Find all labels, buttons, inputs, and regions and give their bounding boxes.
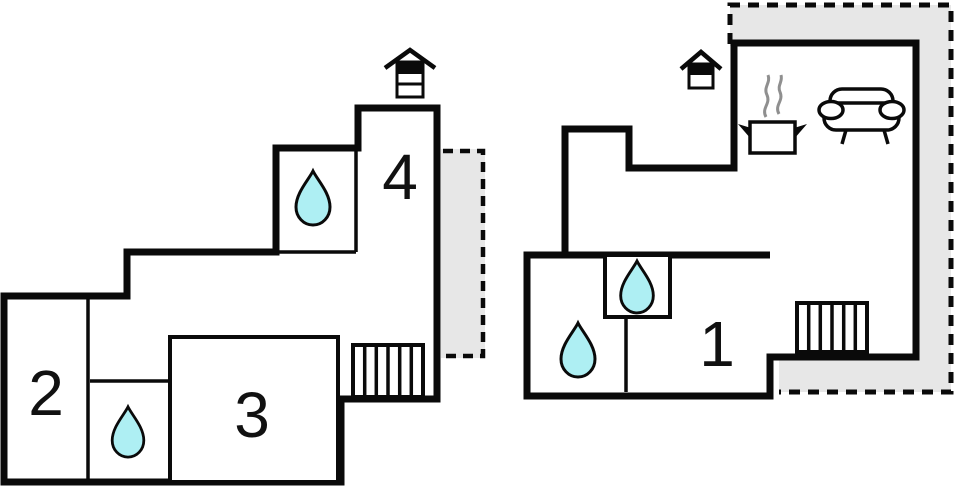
sofa-armrest-left xyxy=(819,102,843,119)
room-label-4: 4 xyxy=(382,141,418,213)
room-label-2: 2 xyxy=(28,357,64,429)
sofa-armrest-right xyxy=(880,102,904,119)
floor-plan-canvas: 4 2 3 1 xyxy=(0,0,960,490)
stairs-icon xyxy=(797,303,867,352)
floor-plan-drawing: 4 2 3 1 xyxy=(0,0,960,490)
chimney-black-band xyxy=(397,62,423,74)
terrace-left xyxy=(441,149,485,358)
stairs-icon xyxy=(353,345,423,397)
pot-body xyxy=(750,122,795,153)
room-label-1: 1 xyxy=(699,308,735,380)
left-building: 4 2 3 xyxy=(4,50,485,482)
chimney-icon xyxy=(681,52,721,88)
right-building: 1 xyxy=(527,5,951,396)
chimney-black-band xyxy=(689,64,713,75)
room-label-3: 3 xyxy=(234,379,270,451)
chimney-icon xyxy=(385,50,435,97)
